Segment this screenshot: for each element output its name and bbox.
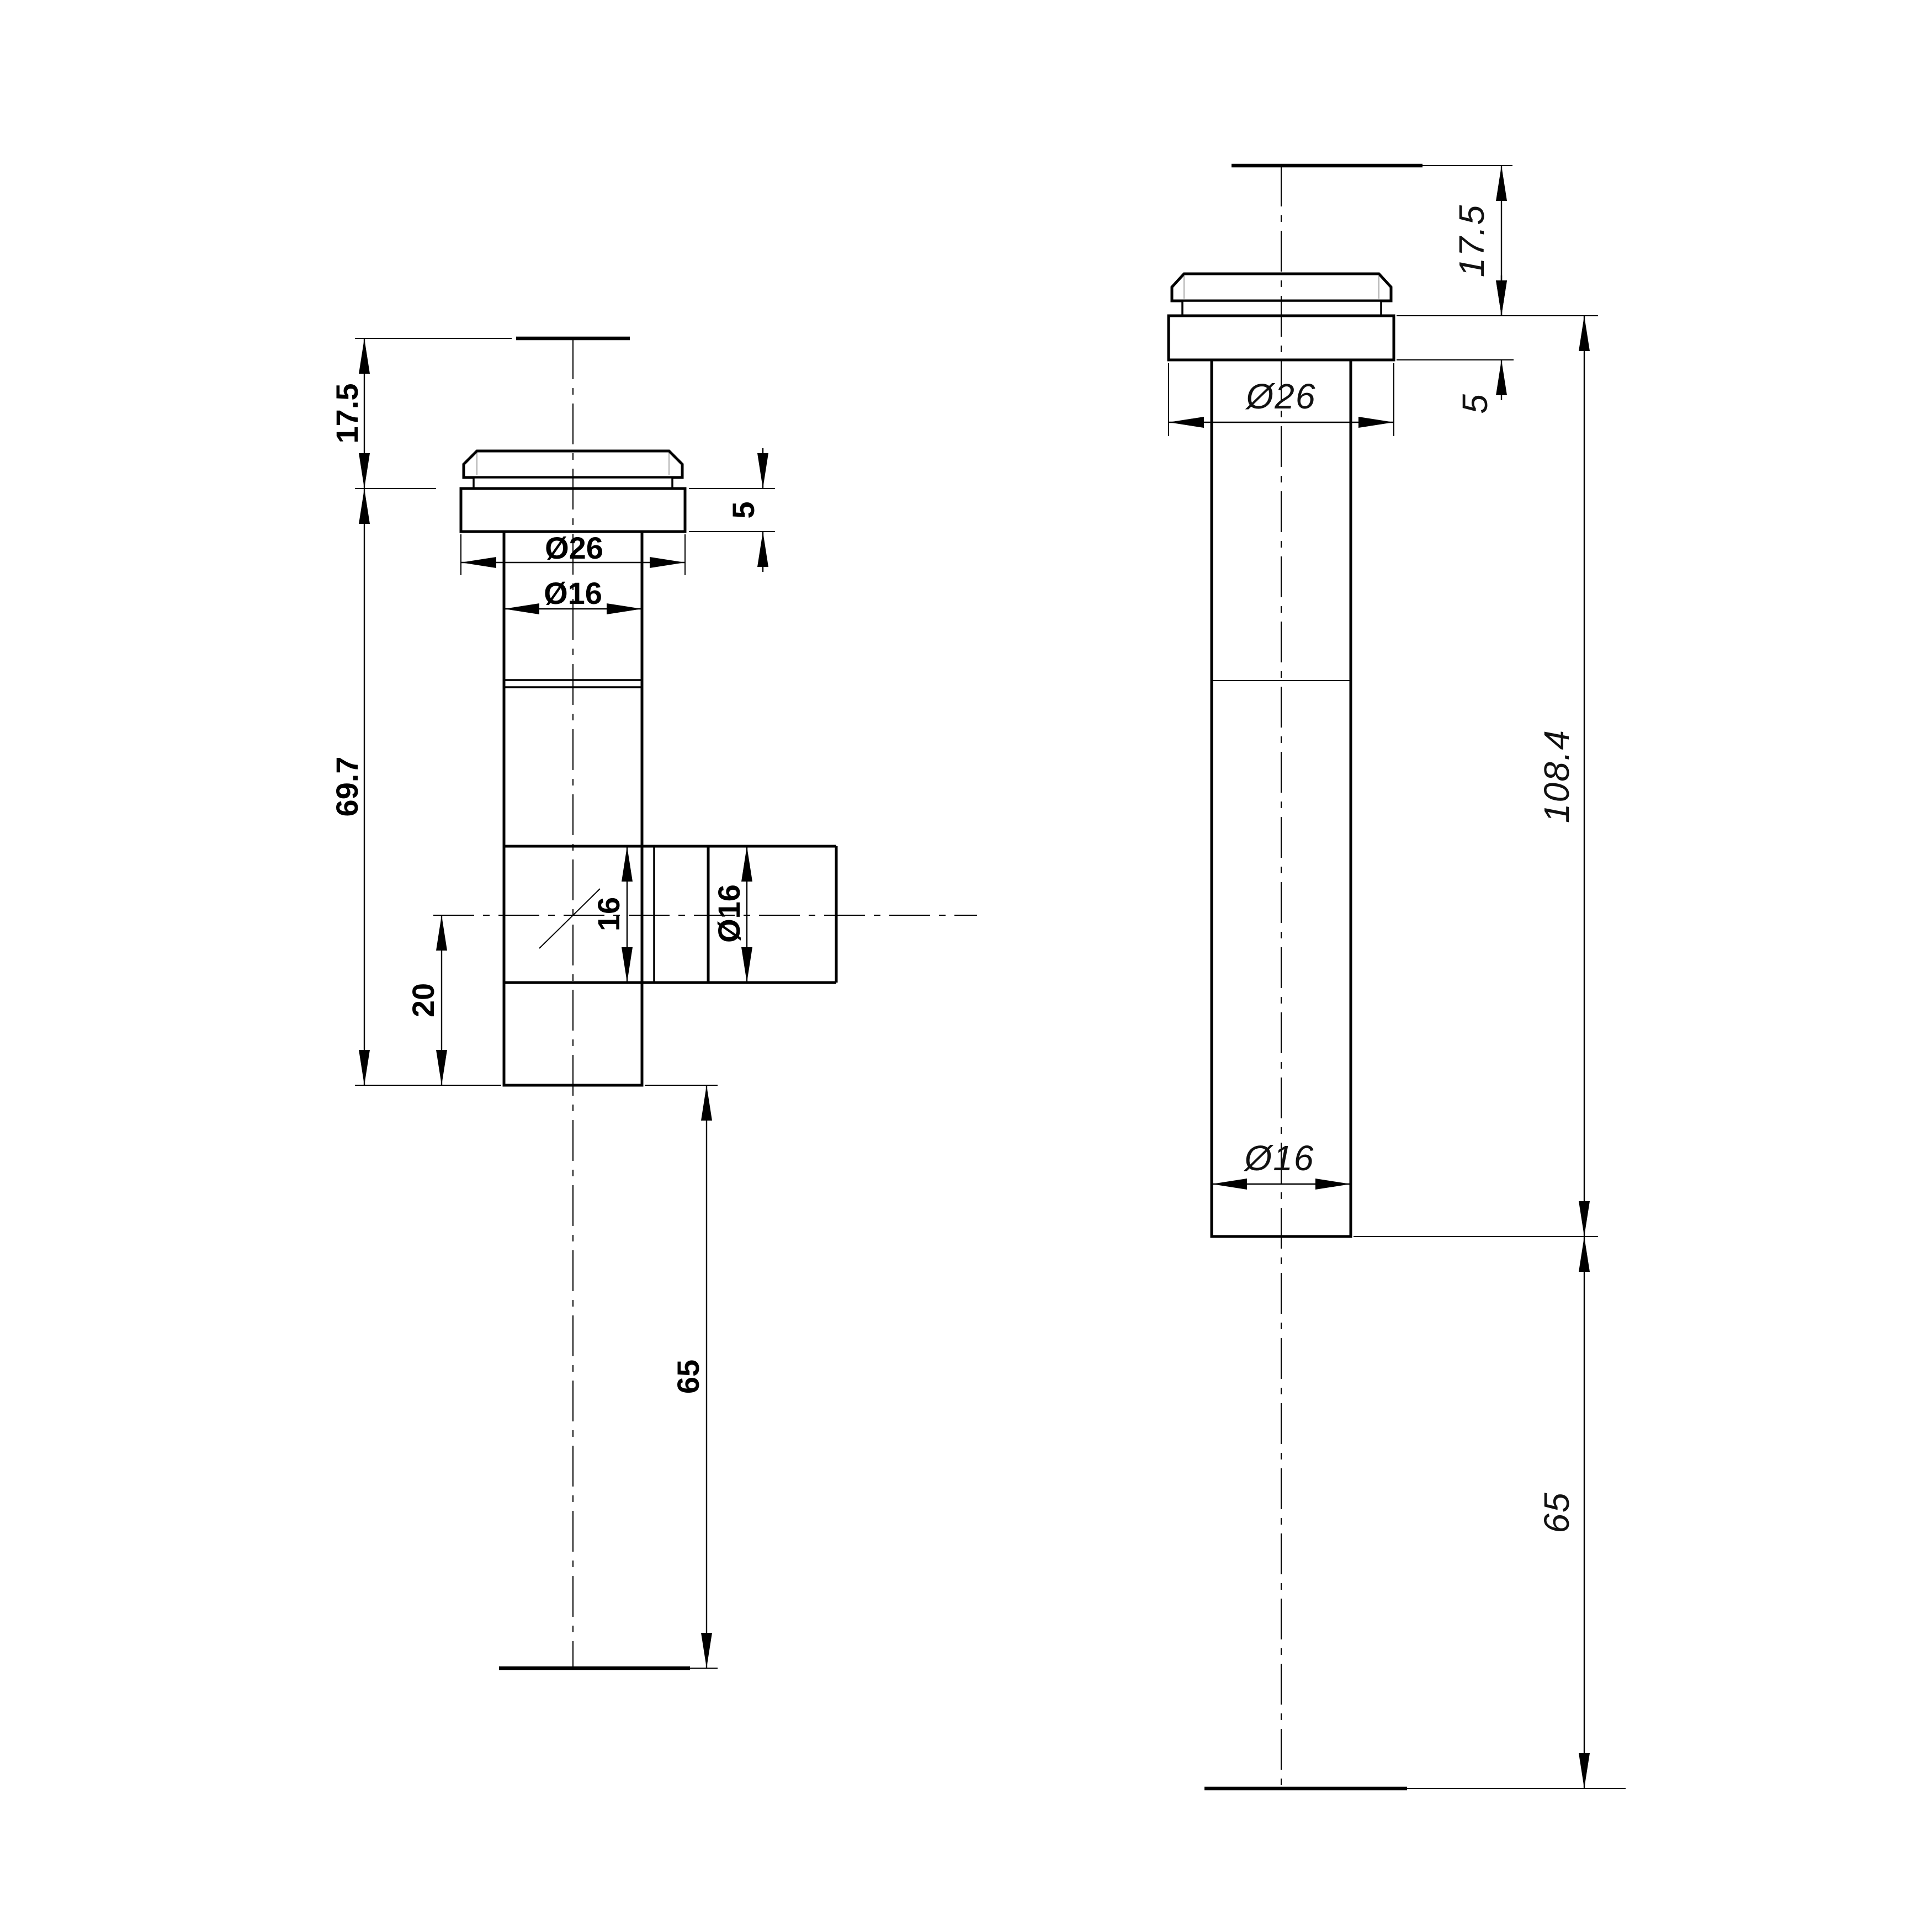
dim-label-left-dia16: Ø16 [544, 576, 602, 611]
dim-label-left-5: 5 [726, 501, 761, 518]
dim-label-branch-16: 16 [591, 897, 626, 931]
dim-label-right-17_5: 17.5 [1452, 204, 1492, 278]
dim-label-branch-dia16: Ø16 [712, 884, 746, 943]
dim-label-right-dia26: Ø26 [1245, 376, 1317, 416]
dim-label-left-69_7: 69.7 [330, 757, 364, 817]
drawing-canvas: 17.5 69.7 20 65 Ø26 Ø16 5 16 Ø16 [0, 0, 1932, 1932]
dim-label-left-20: 20 [406, 983, 440, 1017]
dim-label-right-dia16: Ø16 [1244, 1138, 1315, 1178]
dim-label-right-5: 5 [1455, 393, 1495, 414]
right-view: 17.5 5 Ø26 Ø16 108.4 65 [1169, 166, 1626, 1788]
dim-label-right-108_4: 108.4 [1537, 729, 1577, 823]
left-view: 17.5 69.7 20 65 Ø26 Ø16 5 16 Ø16 [330, 338, 977, 1668]
dim-label-left-65: 65 [671, 1360, 705, 1394]
dim-label-right-65: 65 [1537, 1492, 1577, 1533]
dim-label-left-dia26: Ø26 [545, 530, 603, 565]
technical-drawing: 17.5 69.7 20 65 Ø26 Ø16 5 16 Ø16 [0, 0, 1932, 1932]
dim-label-left-17_5: 17.5 [330, 384, 364, 444]
